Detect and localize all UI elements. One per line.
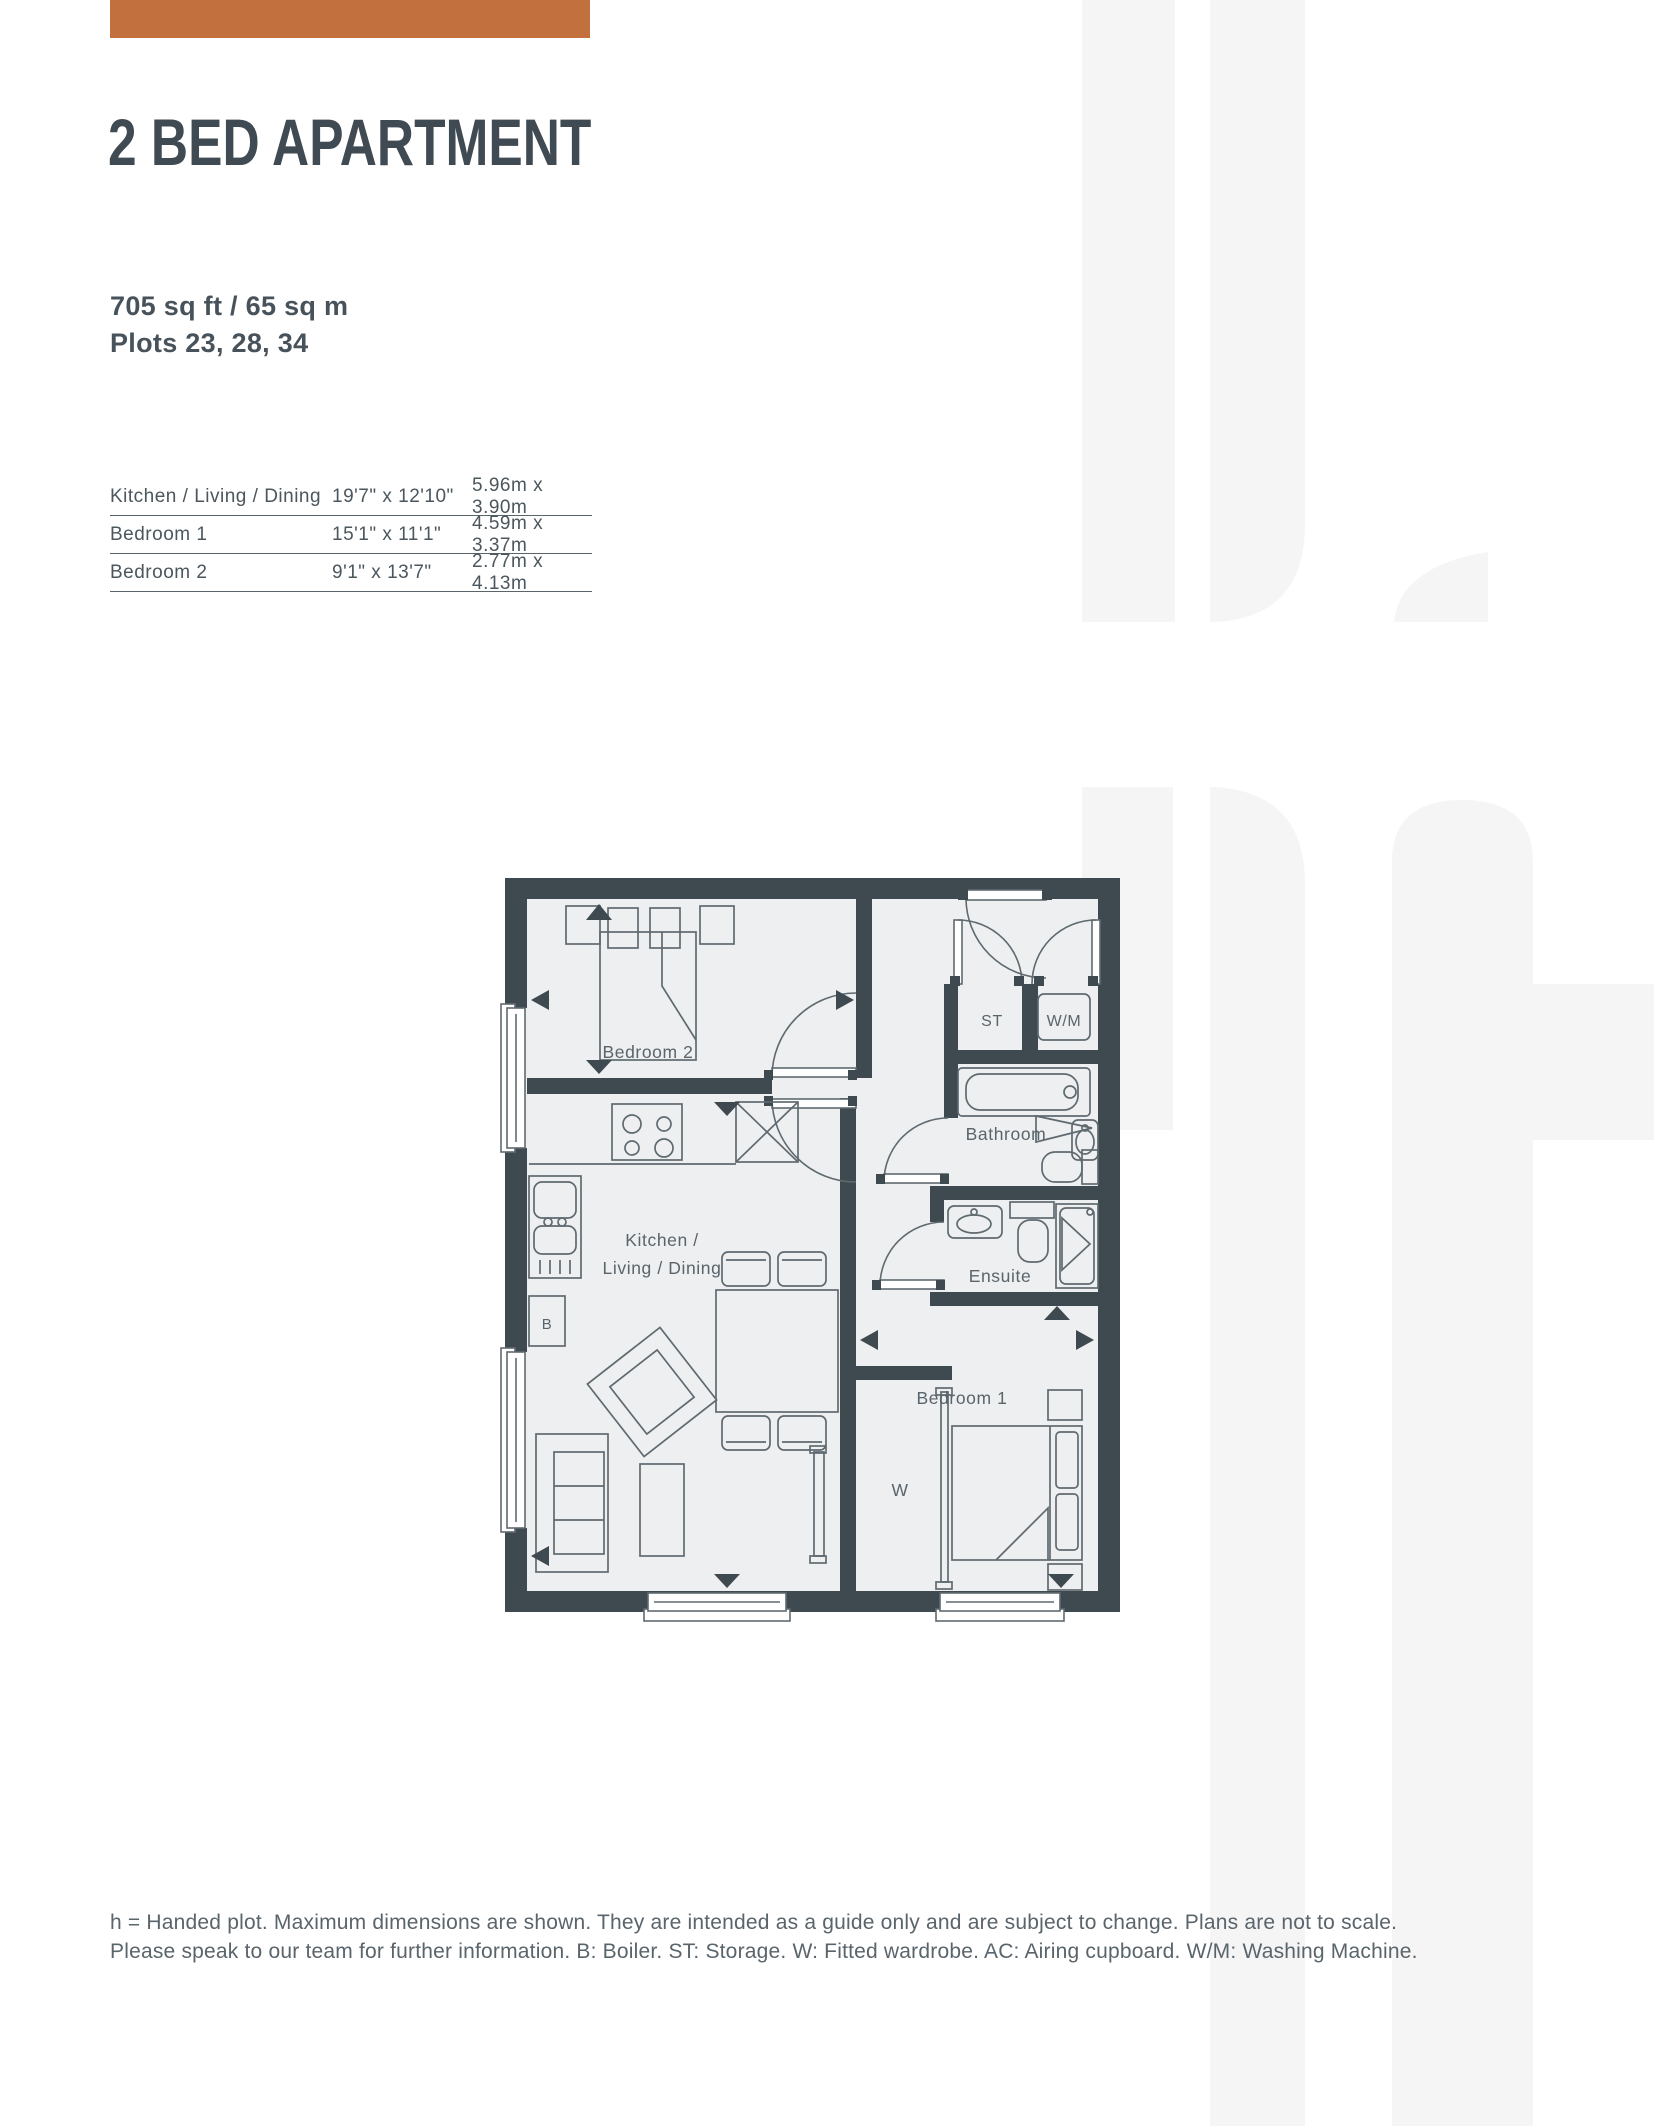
accent-bar bbox=[110, 0, 590, 38]
table-row: Kitchen / Living / Dining 19'7" x 12'10"… bbox=[110, 478, 592, 516]
label-bedroom1: Bedroom 1 bbox=[916, 1388, 1007, 1408]
room-size-imperial: 19'7" x 12'10" bbox=[332, 486, 472, 508]
window-bottom-living bbox=[644, 1593, 790, 1621]
room-name: Bedroom 2 bbox=[110, 562, 332, 584]
apartment-summary: 705 sq ft / 65 sq m Plots 23, 28, 34 bbox=[110, 288, 348, 362]
disclaimer: h = Handed plot. Maximum dimensions are … bbox=[110, 1908, 1418, 1966]
room-name: Bedroom 1 bbox=[110, 524, 332, 546]
window-left-living bbox=[501, 1348, 525, 1532]
room-name: Kitchen / Living / Dining bbox=[110, 486, 332, 508]
window-left-bedroom2 bbox=[501, 1004, 525, 1152]
area-text: 705 sq ft / 65 sq m bbox=[110, 288, 348, 325]
plots-text: Plots 23, 28, 34 bbox=[110, 325, 348, 362]
window-bottom-bedroom1 bbox=[936, 1593, 1064, 1621]
label-kitchen-line1: Kitchen / bbox=[625, 1230, 699, 1250]
label-ensuite: Ensuite bbox=[969, 1266, 1032, 1286]
label-kitchen-line2: Living / Dining bbox=[603, 1258, 722, 1278]
room-size-metric: 2.77m x 4.13m bbox=[472, 551, 592, 595]
label-bedroom2: Bedroom 2 bbox=[602, 1042, 693, 1062]
label-bathroom: Bathroom bbox=[966, 1124, 1047, 1144]
label-boiler: B bbox=[542, 1316, 553, 1333]
page-title: 2 BED APARTMENT bbox=[108, 104, 591, 180]
label-washing-machine: W/M bbox=[1047, 1013, 1082, 1030]
table-row: Bedroom 1 15'1" x 11'1" 4.59m x 3.37m bbox=[110, 516, 592, 554]
disclaimer-line2: Please speak to our team for further inf… bbox=[110, 1937, 1418, 1966]
label-storage: ST bbox=[981, 1013, 1003, 1030]
floorplan: Bedroom 2 Kitchen / Living / Dining Bath… bbox=[501, 878, 1120, 1621]
table-row: Bedroom 2 9'1" x 13'7" 2.77m x 4.13m bbox=[110, 554, 592, 592]
watermark-letters-icon bbox=[1082, 0, 1654, 2126]
room-size-imperial: 15'1" x 11'1" bbox=[332, 524, 472, 546]
label-wardrobe: W bbox=[891, 1480, 908, 1500]
floorplan-brochure-page: Bedroom 2 Kitchen / Living / Dining Bath… bbox=[0, 0, 1654, 2126]
room-size-imperial: 9'1" x 13'7" bbox=[332, 562, 472, 584]
dimensions-table: Kitchen / Living / Dining 19'7" x 12'10"… bbox=[110, 478, 592, 592]
disclaimer-line1: h = Handed plot. Maximum dimensions are … bbox=[110, 1908, 1418, 1937]
